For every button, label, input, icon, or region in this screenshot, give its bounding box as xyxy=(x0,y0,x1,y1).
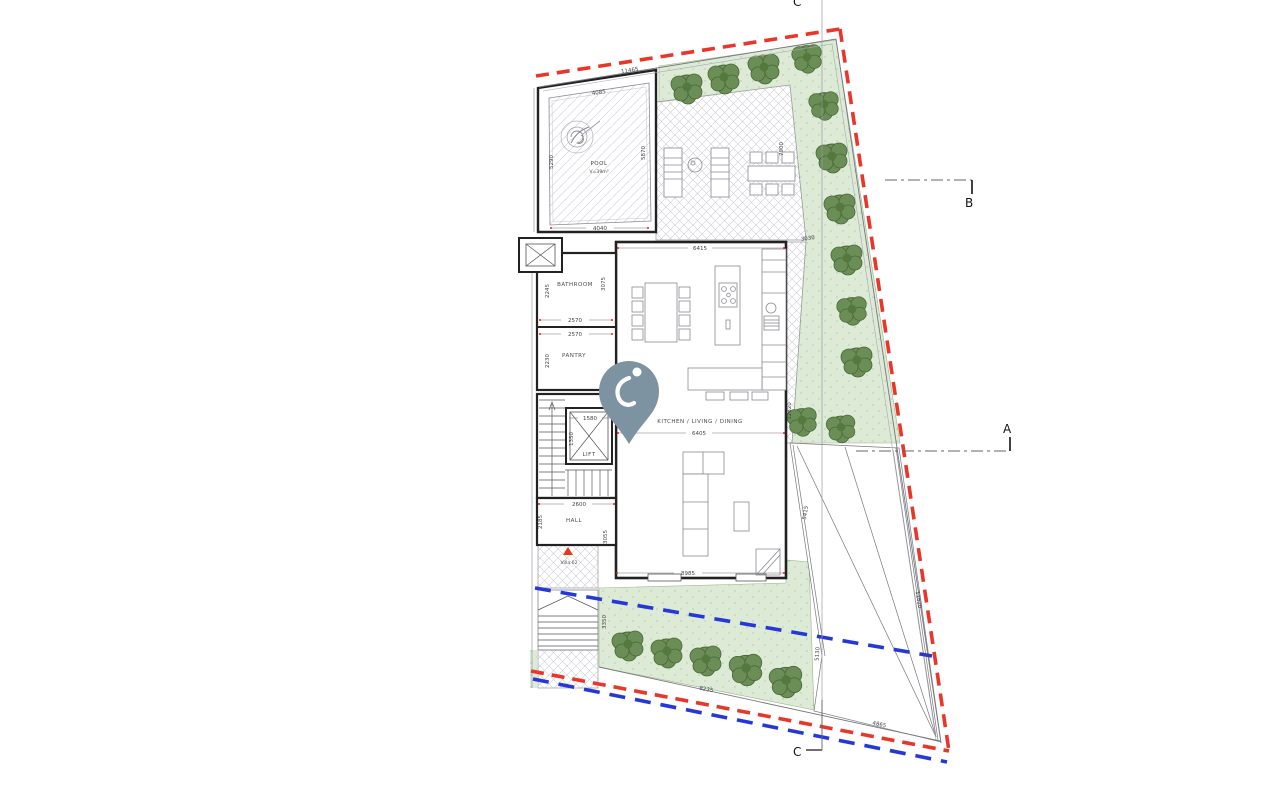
section-label-c: C xyxy=(793,745,801,759)
section-label-a: A xyxy=(1003,422,1012,436)
dim-bathroom-left: 2245 xyxy=(545,284,551,298)
dim-garden-bottom: 8235 xyxy=(699,686,714,694)
bathroom-label: BATHROOM xyxy=(557,282,593,288)
dim-pool-left: 5290 xyxy=(549,155,555,169)
dim-living-bottom: 8985 xyxy=(681,571,695,577)
dim-hall-right: 3055 xyxy=(603,530,609,544)
dim-hall-left: 2185 xyxy=(538,515,544,529)
dim-bathroom-right: 3075 xyxy=(601,277,607,291)
pool-label: POOL xyxy=(590,161,607,167)
section-label-c-top: C xyxy=(793,0,801,9)
unit-label: Villa 02 xyxy=(561,560,578,566)
section-label-b: B xyxy=(965,196,973,210)
dim-living-mid: 6405 xyxy=(692,431,706,437)
dim-garden-left: 3350 xyxy=(602,615,608,629)
dim-lift-left: 1350 xyxy=(569,432,575,446)
dim-living-top: 6415 xyxy=(693,246,707,252)
hall-label: HALL xyxy=(566,518,582,524)
dim-hall-top: 2600 xyxy=(572,502,586,508)
floor-plan-canvas: POOL V=39m³ xyxy=(0,0,1265,800)
dim-pantry-top: 2570 xyxy=(568,332,582,338)
dim-living-right: 12820 xyxy=(787,402,793,420)
dim-lift-top: 1580 xyxy=(583,416,597,422)
site-plan-drawing: POOL V=39m³ xyxy=(0,0,1265,800)
dim-bathroom-bottom: 2570 xyxy=(568,318,582,324)
dim-pantry-left: 2230 xyxy=(545,354,551,368)
dim-pool-bottom: 4040 xyxy=(593,226,608,233)
pantry-label: PANTRY xyxy=(562,353,586,359)
lift-label: LIFT xyxy=(582,452,595,458)
dim-garden-right: 5130 xyxy=(815,646,822,661)
dim-pool-right: 5870 xyxy=(641,146,647,160)
living-label: KITCHEN / LIVING / DINING xyxy=(657,419,742,425)
dim-terrace-right: 7900 xyxy=(779,142,785,156)
pool-volume-label: V=39m³ xyxy=(589,169,608,175)
